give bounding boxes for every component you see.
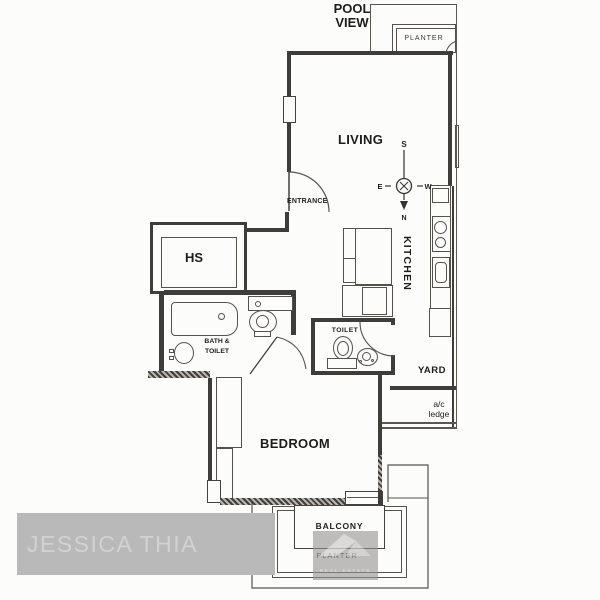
- watermark-agent-box: JESSICA THIA: [17, 513, 275, 575]
- hs-label: HS: [185, 250, 203, 265]
- toilet-sink-dot-2: [371, 359, 374, 362]
- compass: S E W N: [377, 140, 432, 222]
- kitchen-cabinet-c: [355, 228, 392, 285]
- living-wall-column: [283, 96, 296, 123]
- wall-entry-horizontal: [247, 228, 289, 232]
- wall-bath-left: [159, 294, 164, 378]
- wall-bath-top: [164, 290, 296, 295]
- wall-bath-bottom-window: [148, 371, 210, 378]
- right-wall-bump: [455, 125, 459, 168]
- compass-north-label: N: [401, 215, 406, 222]
- bath-door-arc: [277, 337, 306, 369]
- entrance-door-arc: [289, 172, 329, 212]
- ac-ledge-line-1: [380, 422, 457, 424]
- toilet-bowl-inner: [337, 341, 349, 356]
- bath-toilet-line1: BATH &: [196, 337, 238, 347]
- compass-north-arrow: [400, 201, 408, 210]
- wall-toilet-right-a: [391, 318, 395, 325]
- boundary-right-line: [456, 4, 457, 429]
- pool-view-label: POOL VIEW: [328, 2, 376, 31]
- wall-right-outer: [452, 186, 454, 428]
- yard-label: YARD: [414, 365, 450, 376]
- wall-yard-bottom: [390, 386, 456, 390]
- pool-view-line2: VIEW: [328, 16, 376, 30]
- bath-door-panel: [250, 337, 277, 374]
- yard-washer: [429, 308, 451, 337]
- stove-burner-2: [435, 237, 446, 248]
- stove-burner-1: [434, 221, 447, 234]
- bath-vanity-faucet: [255, 301, 261, 307]
- wall-bedroom-bottom-window: [220, 498, 346, 505]
- bathtub: [171, 302, 238, 336]
- compass-south-label: S: [401, 140, 407, 149]
- kitchen-fridge: [432, 188, 449, 203]
- bedroom-right-window: [378, 455, 382, 490]
- kitchen-sink-inner: [435, 262, 447, 283]
- kitchen-counter: [430, 185, 451, 320]
- watermark-brand-text: REAL ESTATE: [313, 568, 378, 573]
- boundary-top-line: [370, 4, 457, 5]
- floor-plan: S E W N POOL VIEW PLANTER LIVING ENTRANC…: [0, 0, 600, 600]
- bath-basin-tap-1: [169, 349, 174, 353]
- toilet-sink-inner: [362, 352, 371, 361]
- bath-toilet-base: [254, 331, 271, 337]
- ac-ledge-line2: ledge: [423, 409, 455, 419]
- bath-toilet-bowl-inner: [256, 315, 269, 328]
- watermark-logo-icon: [315, 532, 375, 568]
- bath-toilet-line2: TOILET: [196, 347, 238, 357]
- balcony-label: BALCONY: [294, 521, 385, 531]
- toilet-label: TOILET: [328, 327, 362, 334]
- ac-ledge-line-2: [380, 427, 457, 429]
- kitchen-cabinet-e: [362, 287, 387, 315]
- kitchen-label: KITCHEN: [401, 236, 413, 291]
- ac-ledge-line1: a/c: [423, 399, 455, 409]
- bath-basin: [174, 342, 194, 364]
- compass-circle: [397, 179, 412, 194]
- bathtub-drain: [218, 313, 225, 320]
- entrance-label: ENTRANCE: [287, 198, 328, 205]
- living-room-label: LIVING: [338, 132, 383, 147]
- bath-toilet-label: BATH & TOILET: [196, 337, 238, 357]
- compass-east-label: E: [377, 182, 382, 191]
- pool-view-line1: POOL: [328, 2, 376, 16]
- bath-basin-tap-2: [169, 356, 174, 360]
- wall-top: [287, 51, 453, 55]
- ac-ledge-label: a/c ledge: [423, 399, 455, 419]
- wall-right-upper: [448, 55, 452, 186]
- bedroom-label: BEDROOM: [260, 436, 330, 451]
- wall-toilet-bottom: [311, 371, 395, 375]
- planter-top-label: PLANTER: [399, 35, 449, 42]
- toilet-sink-dot-1: [359, 360, 362, 363]
- wall-toilet-top: [311, 318, 395, 322]
- toilet-counter: [327, 358, 357, 369]
- wall-toilet-left: [311, 318, 315, 375]
- bedroom-column: [207, 480, 221, 503]
- watermark-agent-name: JESSICA THIA: [17, 531, 198, 558]
- bedroom-wardrobe: [216, 377, 242, 448]
- bedroom-sliding-door-line: [347, 497, 381, 498]
